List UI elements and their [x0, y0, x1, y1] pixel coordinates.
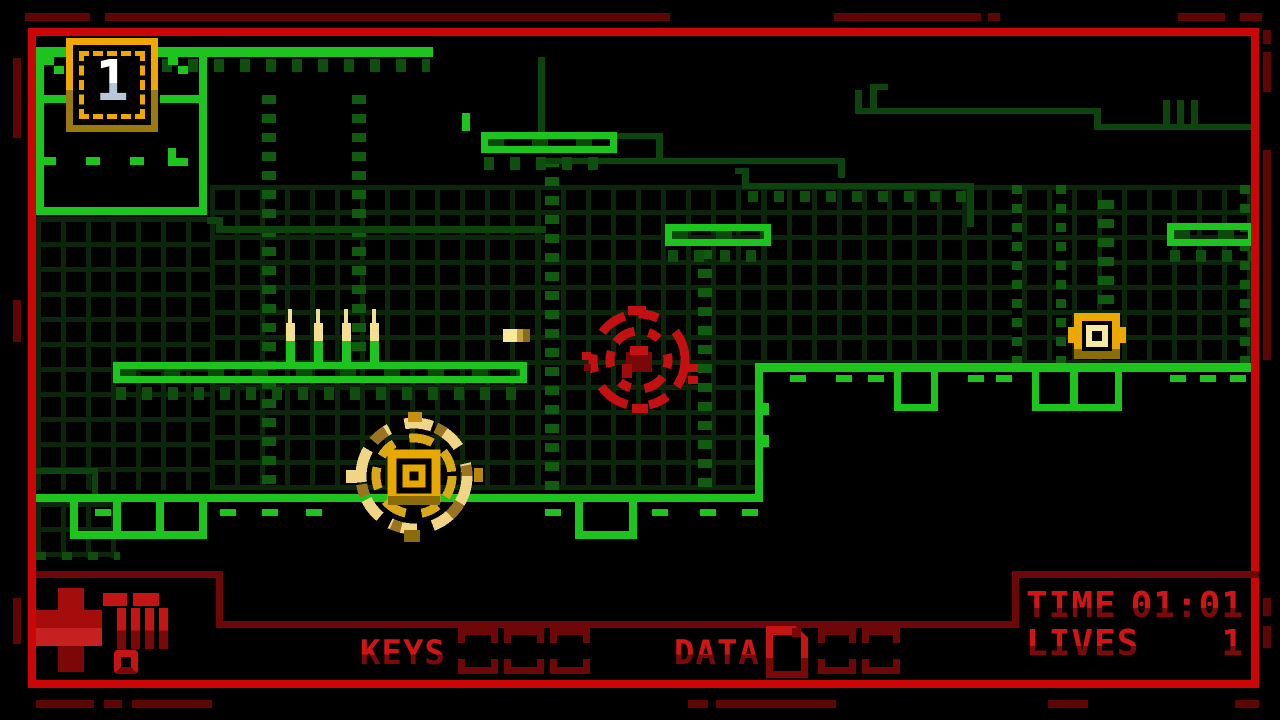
border-dash: [1263, 52, 1271, 92]
border-dash: [1240, 13, 1262, 21]
border-dash: [1263, 598, 1271, 616]
key-slot-1: [458, 628, 498, 674]
health-meter-icon: [103, 593, 173, 653]
data-slot-3: [862, 628, 900, 674]
lives-row: LIVES 1: [1026, 626, 1244, 662]
key-slot-3: [550, 628, 590, 674]
keys-label: KEYS: [360, 636, 446, 670]
border-dash: [988, 13, 1000, 21]
time-value: 01:01: [1131, 588, 1244, 624]
time-row: TIME 01:01: [1026, 588, 1244, 624]
hud-frame: [216, 571, 223, 628]
game-viewport[interactable]: 1: [0, 0, 1280, 720]
border-dash: [13, 58, 21, 138]
lives-label: LIVES: [1026, 626, 1139, 662]
border-dash: [1178, 13, 1225, 21]
hud-frame: [1012, 571, 1019, 628]
data-file-icon: [766, 626, 808, 678]
hud-frame: [36, 571, 223, 578]
border-dash: [132, 700, 212, 708]
health-ring-icon: [114, 650, 138, 674]
data-slot-2: [818, 628, 856, 674]
hud-frame: [216, 621, 1019, 628]
border-dash: [1263, 150, 1271, 360]
border-dash: [1263, 626, 1271, 648]
border-dash: [834, 13, 981, 21]
lives-value: 1: [1221, 626, 1244, 662]
health-cross-icon: [36, 588, 102, 672]
border-dash: [1263, 30, 1271, 44]
hud-frame: [1012, 571, 1259, 578]
data-label: DATA: [674, 636, 760, 670]
key-slot-2: [504, 628, 544, 674]
border-dash: [1235, 700, 1259, 708]
border-dash: [105, 13, 670, 21]
border-dash: [688, 700, 708, 708]
border-dash: [716, 700, 836, 708]
border-dash: [36, 700, 94, 708]
time-label: TIME: [1026, 588, 1117, 624]
border-dash: [13, 300, 21, 342]
border-dash: [1048, 700, 1088, 708]
border-dash: [13, 598, 21, 644]
border-dash: [104, 700, 122, 708]
border-dash: [25, 13, 90, 21]
